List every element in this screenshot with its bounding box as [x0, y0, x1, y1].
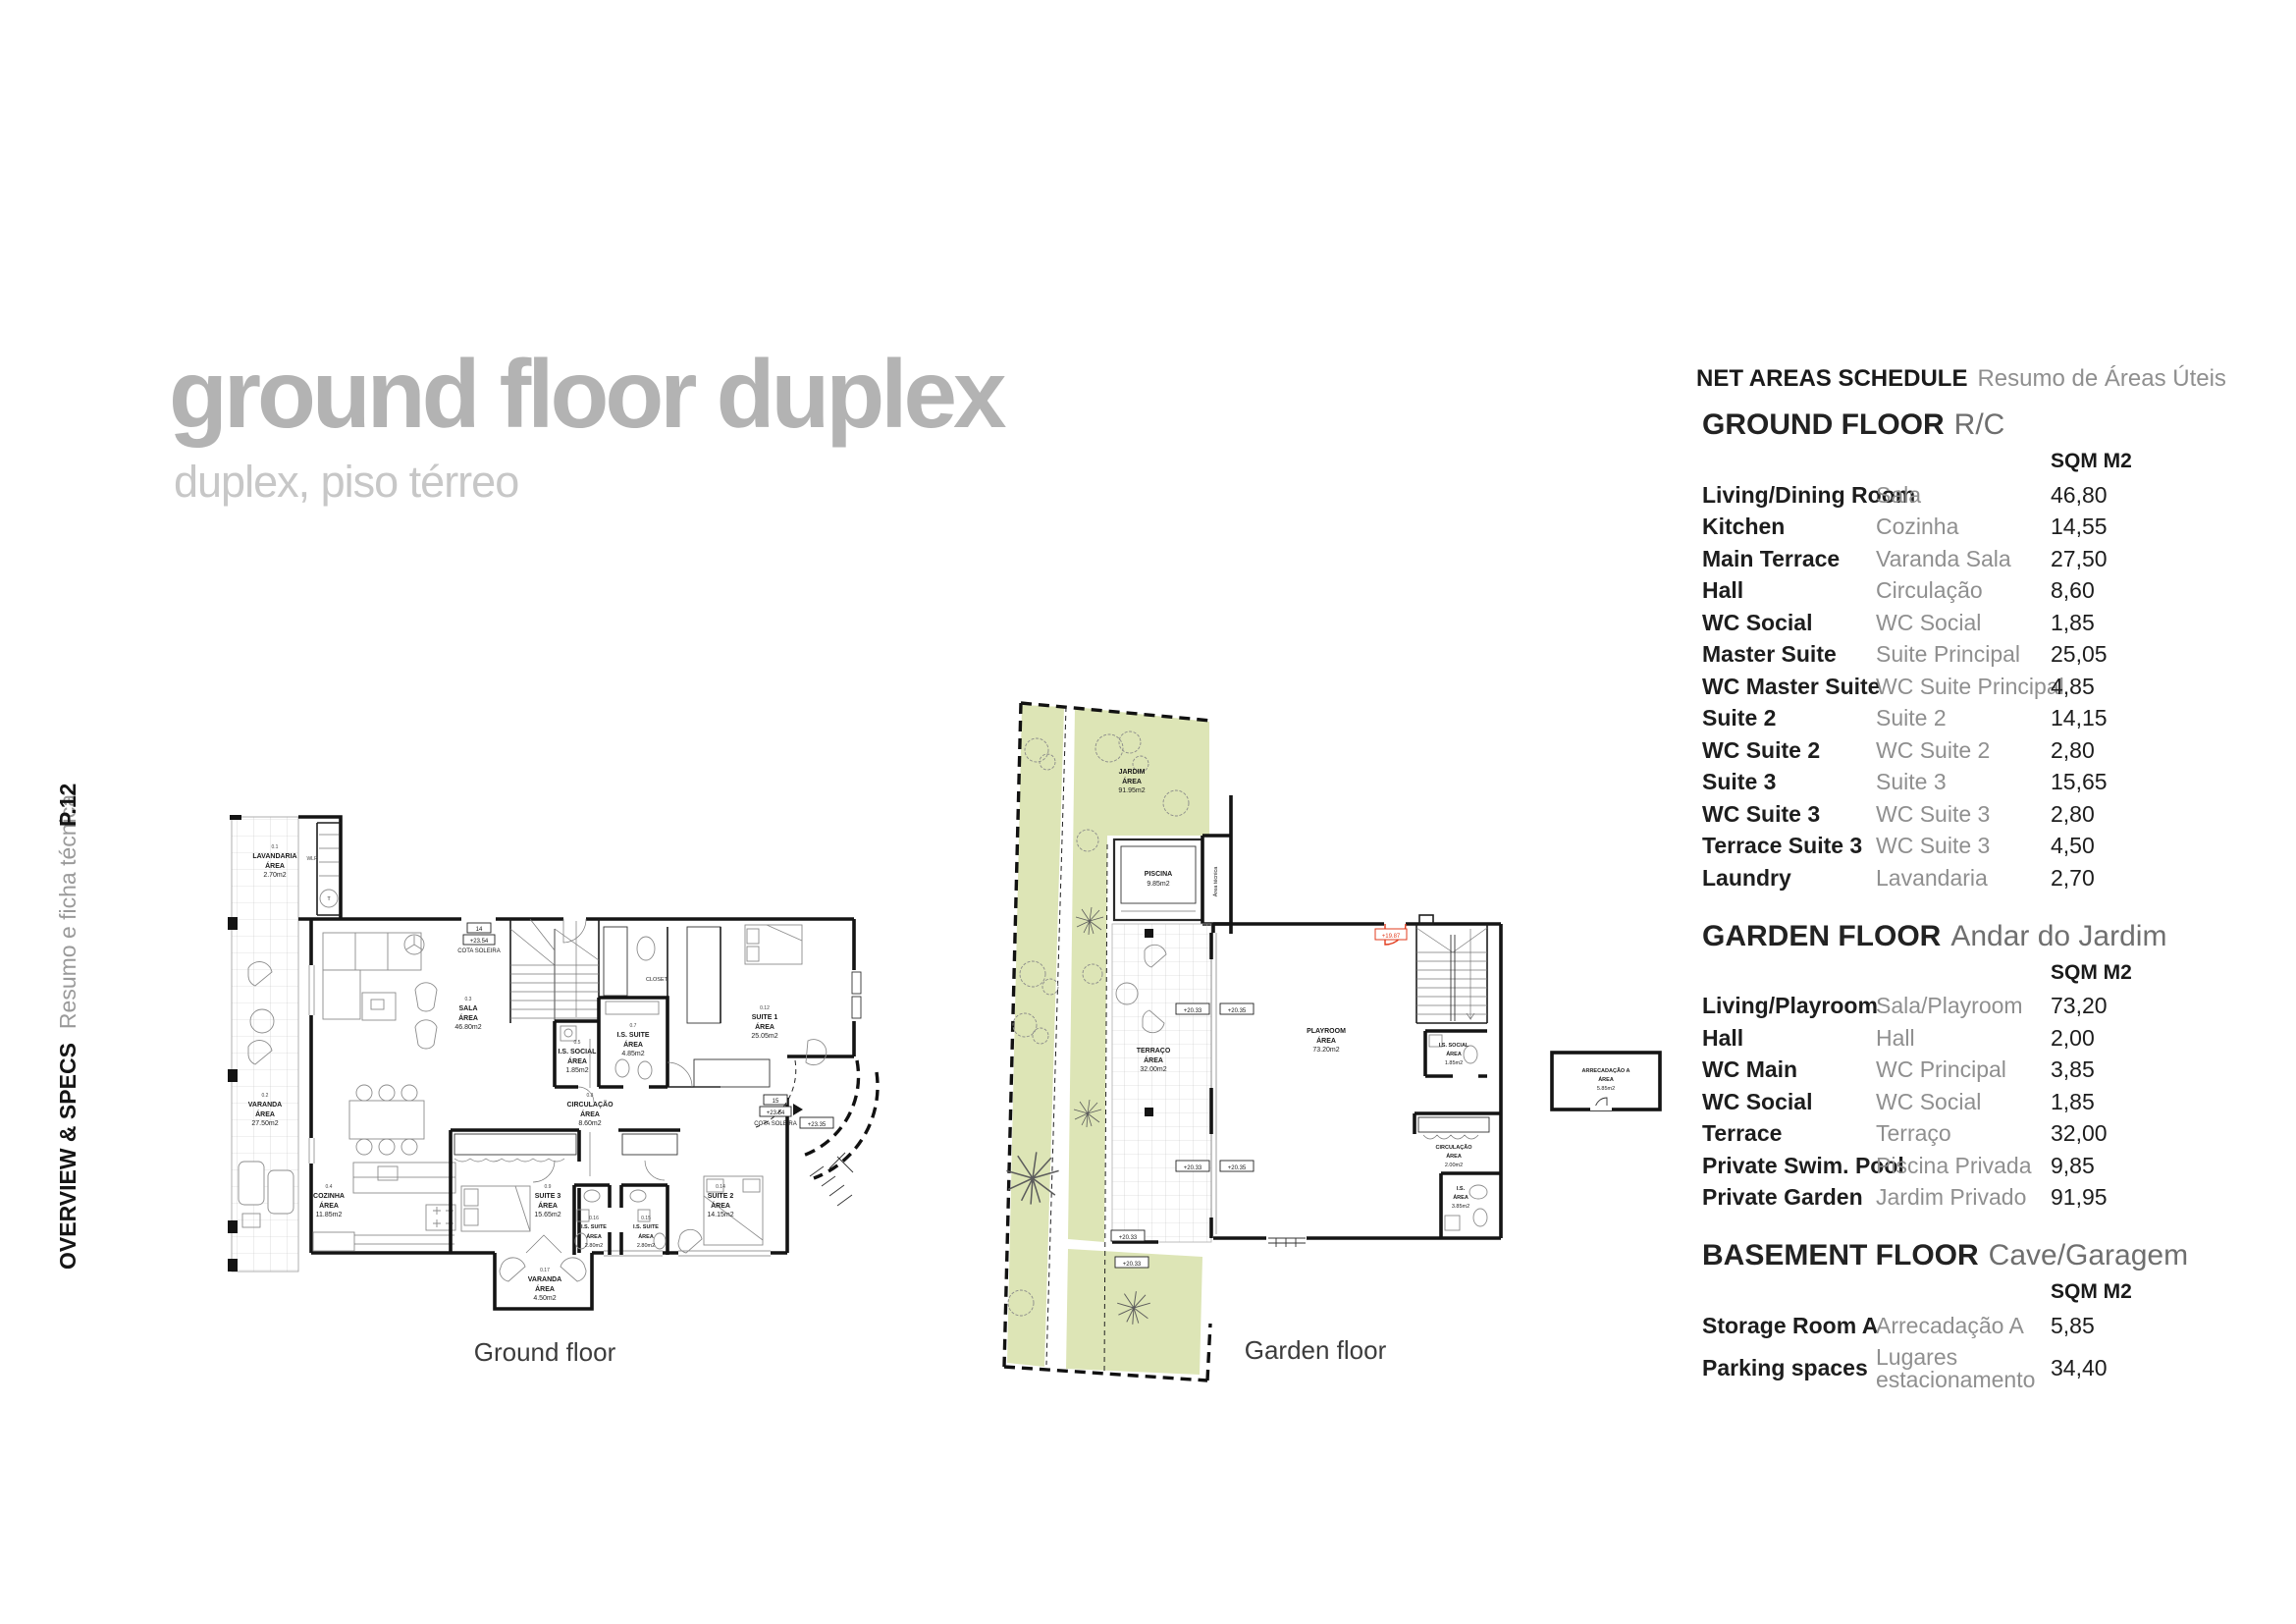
svg-text:14.15m2: 14.15m2 — [707, 1212, 733, 1218]
wc-master-suite: 0.7 I.S. SUITE ÁREA 4.85m2 — [599, 998, 667, 1087]
svg-text:+23.35: +23.35 — [808, 1122, 827, 1128]
table-row: LaundryLavandaria2,70 — [1702, 862, 2148, 894]
sidebar-title: OVERVIEW & SPECS — [55, 1043, 80, 1270]
svg-text:SUITE 2: SUITE 2 — [708, 1193, 734, 1200]
svg-text:CLOSET: CLOSET — [646, 977, 668, 983]
svg-text:5.85m2: 5.85m2 — [1597, 1086, 1615, 1092]
svg-text:9.85m2: 9.85m2 — [1147, 881, 1169, 888]
svg-text:CIRCULAÇÃO: CIRCULAÇÃO — [1436, 1144, 1473, 1151]
svg-text:JARDIM: JARDIM — [1119, 769, 1146, 776]
svg-text:91.95m2: 91.95m2 — [1118, 787, 1145, 794]
section-heading: GARDEN FLOORAndar do Jardim — [1702, 920, 2148, 953]
svg-text:+20.33: +20.33 — [1119, 1235, 1138, 1241]
svg-text:2.00m2: 2.00m2 — [1445, 1163, 1463, 1168]
svg-text:ÁREA: ÁREA — [567, 1056, 587, 1065]
svg-text:ÁREA: ÁREA — [1453, 1194, 1468, 1201]
svg-text:1.85m2: 1.85m2 — [565, 1067, 588, 1074]
laundry-room: T WLR — [298, 817, 341, 919]
kitchen: 0.4 COZINHA ÁREA 11.85m2 — [313, 1163, 455, 1251]
svg-text:PISCINA: PISCINA — [1145, 871, 1172, 878]
table-row: WC MainWC Principal3,85 — [1702, 1055, 2148, 1087]
svg-text:0.9: 0.9 — [545, 1184, 552, 1190]
table-row: TerraceTerraço32,00 — [1702, 1118, 2148, 1151]
svg-text:ÁREA: ÁREA — [458, 1013, 478, 1022]
svg-text:11.85m2: 11.85m2 — [316, 1212, 343, 1218]
svg-text:0.2: 0.2 — [262, 1093, 269, 1099]
svg-text:+19.87: +19.87 — [1382, 934, 1401, 940]
svg-text:CIRCULAÇÃO: CIRCULAÇÃO — [566, 1100, 614, 1109]
svg-text:Área técnica: Área técnica — [1212, 866, 1219, 897]
table-row: Main TerraceVaranda Sala27,50 — [1702, 543, 2148, 575]
svg-text:0.5: 0.5 — [574, 1040, 581, 1046]
svg-text:VARANDA: VARANDA — [248, 1102, 282, 1109]
svg-text:ÁREA: ÁREA — [265, 861, 285, 870]
svg-text:+23.54: +23.54 — [470, 939, 489, 945]
suite-2: 0.14 SUITE 2 ÁREA 14.15m2 — [678, 1176, 763, 1253]
svg-text:SALA: SALA — [458, 1005, 477, 1012]
table-row: Living/PlayroomSala/Playroom73,20 — [1702, 991, 2148, 1023]
svg-text:32.00m2: 32.00m2 — [1140, 1066, 1166, 1073]
svg-text:8.60m2: 8.60m2 — [578, 1120, 601, 1127]
table-row: Parking spacesLugares estacionamento34,4… — [1702, 1342, 2148, 1395]
table-row: HallCirculação8,60 — [1702, 575, 2148, 608]
svg-text:LAVANDARIA: LAVANDARIA — [252, 853, 296, 860]
svg-text:0.14: 0.14 — [716, 1184, 725, 1190]
section-garden-floor: GARDEN FLOORAndar do Jardim SQM M2 Livin… — [1696, 920, 2148, 1215]
table-row: WC SocialWC Social1,85 — [1702, 607, 2148, 639]
svg-text:ÁREA: ÁREA — [1446, 1153, 1462, 1160]
svg-text:ÁREA: ÁREA — [623, 1040, 643, 1049]
svg-text:ÁREA: ÁREA — [711, 1201, 730, 1210]
schedule-title-pt: Resumo de Áreas Úteis — [1977, 365, 2225, 392]
svg-text:0.17: 0.17 — [540, 1268, 550, 1273]
table-row: HallHall2,00 — [1702, 1022, 2148, 1055]
svg-text:I.S. SUITE: I.S. SUITE — [616, 1032, 649, 1039]
garden-floor-plan: JARDIM ÁREA 91.95m2 PISCINA 9.85m2 Área … — [1001, 687, 1679, 1384]
svg-text:I.S. SOCIAL: I.S. SOCIAL — [1439, 1043, 1469, 1049]
garden-staircase — [1416, 924, 1487, 1023]
sidebar-section-label: OVERVIEW & SPECSResumo e ficha técnica — [55, 794, 80, 1270]
svg-text:ÁREA: ÁREA — [1316, 1036, 1336, 1045]
svg-text:25.05m2: 25.05m2 — [751, 1033, 777, 1040]
garden-wc-social: I.S. SOCIAL ÁREA 1.85m2 — [1425, 1031, 1487, 1076]
table-row: Suite 3Suite 315,65 — [1702, 767, 2148, 799]
svg-text:COZINHA: COZINHA — [313, 1193, 345, 1200]
table-row: WC Master SuiteWC Suite Principal4,85 — [1702, 671, 2148, 703]
threshold-marker-15: 15 +23.54 COTA SOLEIRA +23.35 — [754, 1060, 878, 1206]
svg-text:ARRECADAÇÃO A: ARRECADAÇÃO A — [1582, 1067, 1630, 1074]
svg-text:14: 14 — [476, 927, 483, 933]
svg-text:2.70m2: 2.70m2 — [263, 872, 286, 879]
sidebar-subtitle: Resumo e ficha técnica — [55, 794, 80, 1029]
storage-room: ARRECADAÇÃO A ÁREA 5.85m2 — [1552, 1053, 1660, 1110]
svg-text:ÁREA: ÁREA — [535, 1284, 555, 1293]
svg-text:0.4: 0.4 — [326, 1184, 333, 1190]
table-row: WC Suite 3WC Suite 32,80 — [1702, 798, 2148, 831]
svg-text:0.16: 0.16 — [589, 1216, 599, 1221]
svg-text:+20.33: +20.33 — [1123, 1262, 1142, 1268]
svg-text:ÁREA: ÁREA — [255, 1110, 275, 1118]
table-row: Suite 2Suite 214,15 — [1702, 703, 2148, 735]
svg-text:+20.33: +20.33 — [1184, 1008, 1202, 1014]
living-room: 0.3 SALA ÁREA 46.80m2 — [323, 933, 482, 1155]
garden-hall: CIRCULAÇÃO ÁREA 2.00m2 — [1415, 1113, 1501, 1168]
ground-floor-caption: Ground floor — [474, 1337, 616, 1367]
svg-text:4.50m2: 4.50m2 — [533, 1295, 556, 1302]
svg-text:ÁREA: ÁREA — [755, 1022, 774, 1031]
sqm-header: SQM M2 — [1702, 961, 2148, 985]
suite-1: 0.12 SUITE 1 ÁREA 25.05m2 — [667, 925, 827, 1087]
sqm-header: SQM M2 — [1702, 450, 2148, 473]
svg-text:2.80m2: 2.80m2 — [585, 1243, 603, 1249]
svg-text:1.85m2: 1.85m2 — [1445, 1060, 1463, 1066]
section-heading: BASEMENT FLOORCave/Garagem — [1702, 1239, 2148, 1272]
svg-text:0.12: 0.12 — [760, 1005, 770, 1011]
svg-text:0.7: 0.7 — [630, 1023, 637, 1029]
svg-text:VARANDA: VARANDA — [528, 1276, 561, 1283]
section-heading: GROUND FLOORR/C — [1702, 408, 2148, 442]
net-areas-schedule: NET AREAS SCHEDULEResumo de Áreas Úteis … — [1696, 365, 2148, 1421]
svg-text:ÁREA: ÁREA — [1598, 1076, 1614, 1083]
svg-text:15.65m2: 15.65m2 — [534, 1212, 561, 1218]
svg-text:46.80m2: 46.80m2 — [454, 1024, 481, 1031]
table-row: Private Swim. PoolPiscina Privada9,85 — [1702, 1150, 2148, 1182]
table-row: WC Suite 2WC Suite 22,80 — [1702, 734, 2148, 767]
suite-3: 0.9 SUITE 3 ÁREA 15.65m2 — [461, 1184, 561, 1231]
svg-text:0.3: 0.3 — [465, 997, 472, 1002]
table-row: KitchenCozinha14,55 — [1702, 512, 2148, 544]
svg-text:I.S. SOCIAL: I.S. SOCIAL — [559, 1049, 598, 1056]
wc-suite-2: 0.15 I.S. SUITE ÁREA 2.80m2 — [630, 1190, 666, 1249]
svg-text:ÁREA: ÁREA — [1144, 1056, 1163, 1064]
svg-text:+20.35: +20.35 — [1228, 1165, 1247, 1171]
garden-terrace: TERRAÇO ÁREA 32.00m2 — [1112, 924, 1211, 1242]
svg-text:4.85m2: 4.85m2 — [621, 1051, 644, 1057]
table-row: Private GardenJardim Privado91,95 — [1702, 1182, 2148, 1215]
svg-text:ÁREA: ÁREA — [319, 1201, 339, 1210]
svg-text:ÁREA: ÁREA — [538, 1201, 558, 1210]
sqm-header: SQM M2 — [1702, 1280, 2148, 1304]
svg-text:WLR: WLR — [306, 856, 318, 862]
schedule-title: NET AREAS SCHEDULEResumo de Áreas Úteis — [1696, 365, 2148, 393]
staircase — [510, 919, 599, 1023]
svg-text:73.20m2: 73.20m2 — [1312, 1047, 1339, 1054]
entry-door-marker: +19.87 — [1375, 924, 1407, 945]
playroom-label: PLAYROOM ÁREA 73.20m2 — [1307, 1028, 1346, 1054]
section-ground-floor: GROUND FLOORR/C SQM M2 Living/Dining Roo… — [1696, 408, 2148, 894]
svg-text:SUITE 1: SUITE 1 — [752, 1014, 778, 1021]
svg-text:ÁREA: ÁREA — [586, 1233, 602, 1240]
svg-text:+20.35: +20.35 — [1228, 1008, 1247, 1014]
svg-text:ÁREA: ÁREA — [1122, 777, 1142, 785]
svg-text:T: T — [327, 896, 331, 902]
table-row: Living/Dining RoomSala46,80 — [1702, 479, 2148, 512]
svg-text:+20.33: +20.33 — [1184, 1165, 1202, 1171]
table-row: WC SocialWC Social1,85 — [1702, 1086, 2148, 1118]
svg-text:+23.54: +23.54 — [767, 1110, 785, 1116]
ground-floor-plan: T WLR — [221, 803, 898, 1392]
brochure-page: ground floor duplex duplex, piso térreo … — [0, 0, 2296, 1624]
svg-text:2.80m2: 2.80m2 — [637, 1243, 655, 1249]
svg-text:SUITE 3: SUITE 3 — [535, 1193, 561, 1200]
svg-text:ÁREA: ÁREA — [638, 1233, 654, 1240]
svg-text:15: 15 — [773, 1099, 779, 1105]
wc-social: 0.5 I.S. SOCIAL ÁREA 1.85m2 — [555, 1021, 599, 1087]
table-row: Storage Room AArrecadação A5,85 — [1702, 1310, 2148, 1342]
table-row: Master SuiteSuite Principal25,05 — [1702, 639, 2148, 672]
svg-text:COTA SOLEIRA: COTA SOLEIRA — [754, 1121, 797, 1127]
page-number: P.12 — [55, 784, 80, 827]
page-title: ground floor duplex — [169, 346, 1002, 442]
page-subtitle: duplex, piso térreo — [174, 458, 518, 507]
threshold-marker-14: 14 +23.54 COTA SOLEIRA — [457, 923, 501, 954]
svg-text:0.15: 0.15 — [641, 1216, 651, 1221]
garden-floor-caption: Garden floor — [1245, 1335, 1387, 1365]
svg-text:I.S. SUITE: I.S. SUITE — [633, 1224, 659, 1230]
svg-text:TERRAÇO: TERRAÇO — [1137, 1048, 1171, 1055]
garden-label: JARDIM ÁREA 91.95m2 — [1118, 769, 1145, 794]
svg-text:0.1: 0.1 — [272, 844, 279, 850]
svg-text:COTA SOLEIRA: COTA SOLEIRA — [457, 948, 501, 954]
svg-text:PLAYROOM: PLAYROOM — [1307, 1028, 1346, 1035]
garden-wc-main: I.S. ÁREA 3.85m2 — [1441, 1173, 1501, 1238]
table-row: Terrace Suite 3WC Suite 34,50 — [1702, 831, 2148, 863]
svg-text:I.S. SUITE: I.S. SUITE — [581, 1224, 607, 1230]
svg-text:ÁREA: ÁREA — [580, 1110, 600, 1118]
svg-text:3.85m2: 3.85m2 — [1452, 1204, 1469, 1210]
svg-text:I.S.: I.S. — [1457, 1186, 1466, 1192]
section-basement-floor: BASEMENT FLOORCave/Garagem SQM M2 Storag… — [1696, 1239, 2148, 1395]
svg-text:ÁREA: ÁREA — [1446, 1051, 1462, 1057]
schedule-title-en: NET AREAS SCHEDULE — [1696, 365, 1967, 392]
svg-text:27.50m2: 27.50m2 — [251, 1120, 278, 1127]
